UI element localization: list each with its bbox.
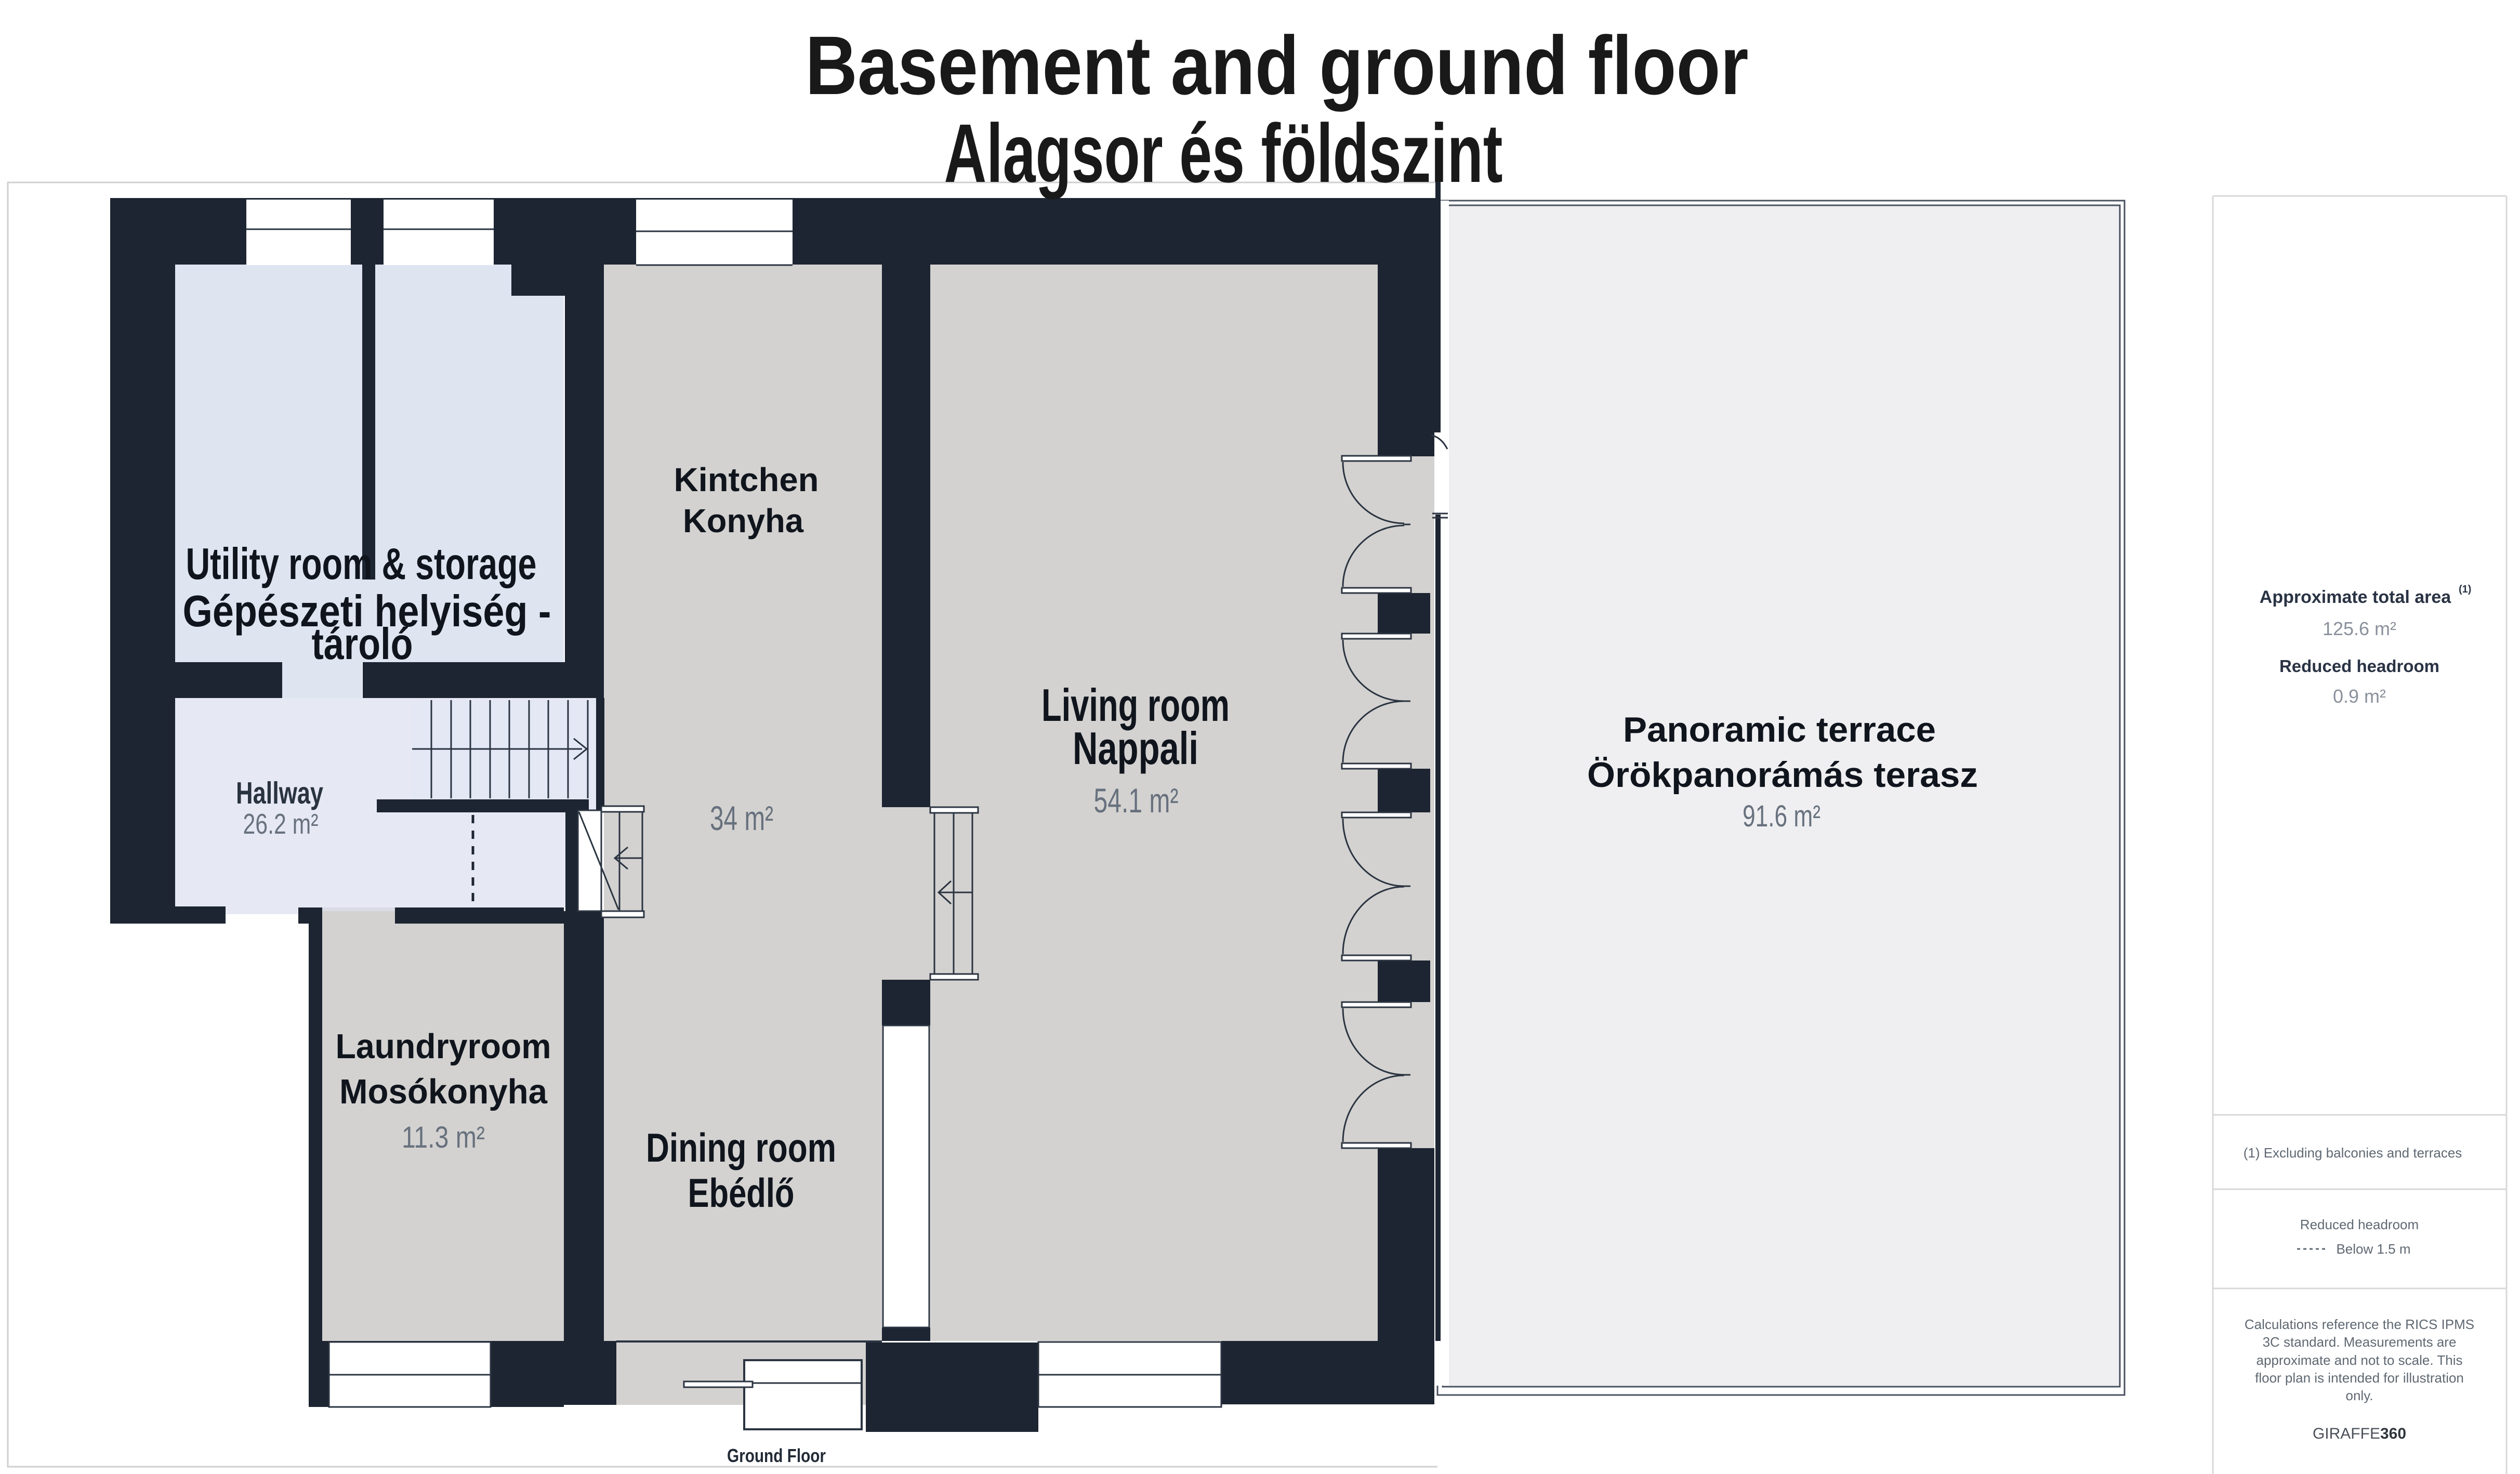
svg-text:tároló: tároló [312,620,413,669]
svg-text:Panoramic terrace: Panoramic terrace [1623,710,1936,749]
svg-text:Reduced headroom: Reduced headroom [2279,656,2439,676]
svg-text:0.9 m²: 0.9 m² [2333,686,2386,707]
svg-text:Mosókonyha: Mosókonyha [339,1072,548,1111]
svg-text:GIRAFFE360: GIRAFFE360 [2313,1425,2406,1442]
svg-text:125.6 m²: 125.6 m² [2323,618,2396,639]
svg-text:Nappali: Nappali [1073,722,1198,774]
svg-text:Utility room & storage: Utility room & storage [186,539,537,589]
svg-text:34 m²: 34 m² [710,799,773,837]
svg-text:Konyha: Konyha [683,502,803,539]
svg-text:54.1 m²: 54.1 m² [1094,781,1179,820]
svg-text:91.6 m²: 91.6 m² [1743,799,1820,833]
svg-text:3C standard. Measurements are: 3C standard. Measurements are [2263,1334,2457,1350]
svg-text:Calculations reference the RIC: Calculations reference the RICS IPMS [2245,1317,2474,1332]
svg-text:only.: only. [2346,1388,2373,1403]
svg-text:Örökpanorámás terasz: Örökpanorámás terasz [1587,755,1978,795]
svg-text:Alagsor és földszint: Alagsor és földszint [944,107,1503,200]
svg-text:Dining room: Dining room [646,1125,836,1170]
svg-text:Below 1.5 m: Below 1.5 m [2336,1241,2410,1257]
svg-text:26.2 m²: 26.2 m² [243,808,319,840]
svg-text:11.3 m²: 11.3 m² [402,1121,485,1154]
svg-text:Ebédlő: Ebédlő [688,1170,795,1216]
svg-text:Ground Floor: Ground Floor [727,1445,826,1466]
svg-text:Approximate total area: Approximate total area [2260,587,2452,607]
svg-text:approximate and not to scale.: approximate and not to scale. This [2257,1352,2463,1368]
svg-text:Reduced headroom: Reduced headroom [2300,1217,2419,1232]
svg-text:Laundryroom: Laundryroom [336,1027,551,1066]
svg-text:Hallway: Hallway [236,776,323,810]
svg-text:(1) Excluding balconies and te: (1) Excluding balconies and terraces [2244,1145,2462,1161]
svg-text:(1): (1) [2459,584,2471,595]
svg-text:Kintchen: Kintchen [674,461,819,498]
svg-text:floor plan is intended for ill: floor plan is intended for illustration [2255,1370,2464,1386]
svg-text:Basement and ground floor: Basement and ground floor [806,19,1749,112]
